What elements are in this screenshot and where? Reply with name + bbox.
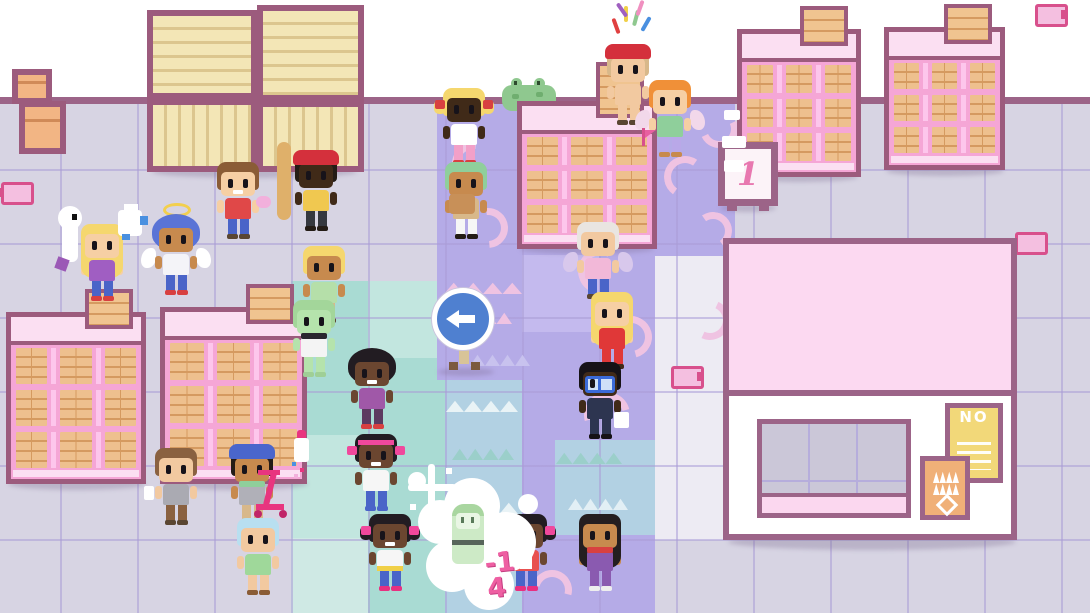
eye — [243, 179, 248, 188]
leg — [618, 104, 627, 121]
character-headband-girl[interactable] — [350, 432, 402, 518]
leg — [166, 504, 175, 521]
torso — [599, 328, 625, 349]
ghost-eye — [461, 517, 464, 523]
torso — [163, 254, 189, 275]
confetti-bits — [292, 462, 308, 480]
ghost-face — [456, 513, 480, 529]
score-popup: -14 — [483, 548, 524, 601]
character-carrier-kid[interactable] — [440, 160, 492, 246]
wing-icon — [141, 248, 156, 268]
character-overalls-kid[interactable] — [212, 160, 264, 246]
jug-handle — [140, 216, 148, 225]
arm — [404, 552, 411, 565]
scooter-stem — [263, 473, 277, 506]
bow-icon — [361, 526, 371, 535]
game-scene: NO 1 — [0, 0, 1090, 613]
mouth — [367, 380, 377, 384]
arm — [612, 260, 619, 273]
eye — [605, 531, 610, 540]
torso — [225, 198, 251, 219]
held-item — [256, 196, 271, 208]
arm — [386, 390, 393, 403]
hat — [605, 44, 651, 59]
eye — [454, 105, 459, 114]
scooter-wheel — [279, 510, 287, 518]
leg — [178, 274, 187, 291]
torso — [359, 388, 385, 409]
torso — [615, 84, 641, 105]
wing-icon — [635, 110, 650, 130]
eye — [181, 465, 186, 474]
hat — [293, 150, 339, 165]
face — [299, 164, 333, 188]
eye — [92, 241, 97, 250]
held-item — [377, 566, 403, 571]
leg — [374, 408, 383, 425]
bow-icon — [347, 446, 357, 455]
eye — [166, 465, 171, 474]
eye — [618, 65, 623, 74]
held-item — [144, 486, 154, 500]
leg — [304, 356, 313, 373]
face — [611, 58, 645, 82]
white-bird[interactable] — [52, 206, 88, 272]
leg — [166, 274, 175, 291]
face — [595, 302, 629, 326]
arm — [355, 472, 362, 485]
character-slingshot-kid[interactable] — [150, 446, 202, 532]
ghost-eye — [471, 517, 474, 523]
eye — [366, 451, 371, 460]
leg — [92, 280, 101, 297]
torso — [245, 554, 271, 575]
eye — [314, 263, 319, 272]
eye — [395, 531, 400, 540]
character-glasses-man[interactable] — [574, 360, 626, 446]
arm — [190, 256, 197, 269]
eye — [590, 379, 595, 388]
bow-icon — [483, 100, 493, 109]
torso — [89, 260, 115, 281]
eye — [248, 535, 253, 544]
eye — [456, 179, 461, 188]
leg — [466, 144, 475, 161]
sparkle-effect — [408, 464, 456, 512]
character-beret-baguette-kid[interactable] — [290, 152, 342, 238]
face — [159, 458, 193, 482]
arm — [155, 256, 162, 269]
eye — [633, 65, 638, 74]
bow-icon — [395, 446, 405, 455]
arm — [293, 338, 300, 351]
bird-tail — [54, 256, 69, 271]
arm — [330, 192, 337, 205]
torso — [363, 470, 389, 491]
eye — [306, 171, 311, 180]
scarf — [587, 547, 613, 553]
eye — [228, 179, 233, 188]
eye — [242, 465, 247, 474]
arm — [443, 126, 450, 139]
eye — [471, 179, 476, 188]
bow-icon — [545, 526, 555, 535]
leg — [318, 210, 327, 227]
character-orange-fairy[interactable] — [644, 78, 696, 164]
character-mint-kid[interactable] — [232, 516, 284, 602]
face — [583, 372, 617, 396]
eye — [181, 235, 186, 244]
eye — [590, 531, 595, 540]
eye — [617, 309, 622, 318]
eye — [675, 97, 680, 106]
arm — [369, 552, 376, 565]
arm — [480, 200, 487, 213]
face — [307, 256, 341, 280]
leg — [316, 356, 325, 373]
eye — [329, 263, 334, 272]
face — [583, 524, 617, 548]
arm — [478, 126, 485, 139]
eye — [380, 531, 385, 540]
ghost-body — [452, 504, 484, 564]
mini-magenta-flag — [642, 128, 658, 146]
arm — [351, 390, 358, 403]
jug-foot — [122, 234, 130, 240]
bow-icon — [435, 100, 445, 109]
scarf — [301, 333, 327, 339]
wing-icon — [690, 110, 705, 130]
leg — [672, 136, 681, 153]
eye — [166, 235, 171, 244]
arm — [231, 486, 238, 499]
ghost-belt — [452, 540, 484, 545]
face — [355, 362, 389, 386]
hat — [229, 444, 275, 459]
held-item — [449, 194, 475, 214]
arm — [540, 552, 547, 565]
character-scarf-girl[interactable] — [574, 512, 626, 598]
torso — [301, 336, 327, 357]
mouth — [385, 542, 395, 546]
leg — [660, 136, 669, 153]
arm — [217, 200, 224, 213]
wing-icon — [618, 252, 633, 272]
eye — [605, 379, 610, 388]
white-jug-item[interactable] — [118, 204, 150, 242]
wing-icon — [563, 252, 578, 272]
mouth — [371, 462, 381, 466]
torso — [587, 398, 613, 419]
eye — [381, 451, 386, 460]
arm — [295, 192, 302, 205]
arm — [190, 486, 197, 499]
scooter-deck — [256, 504, 284, 510]
bird-eye — [72, 214, 77, 220]
pink-scooter[interactable] — [248, 470, 294, 520]
leg — [248, 574, 257, 591]
leg — [260, 574, 269, 591]
eye — [362, 369, 367, 378]
arm — [577, 260, 584, 273]
arm — [684, 118, 691, 131]
arm — [338, 284, 345, 297]
arm — [390, 472, 397, 485]
popsicle-item[interactable] — [294, 430, 312, 464]
leg — [392, 570, 401, 587]
eye — [603, 239, 608, 248]
face — [159, 228, 193, 252]
eye — [660, 97, 665, 106]
face — [241, 528, 275, 552]
leg — [240, 218, 249, 235]
cloud-puff — [518, 494, 538, 514]
arm — [328, 338, 335, 351]
arm — [607, 86, 614, 99]
character-zombie-kid[interactable] — [288, 298, 340, 384]
face — [449, 172, 483, 196]
torso — [585, 258, 611, 279]
held-item — [277, 142, 291, 220]
character-pigtails-girl[interactable] — [364, 512, 416, 598]
eye — [321, 171, 326, 180]
eye — [263, 535, 268, 544]
leg — [456, 218, 465, 235]
leg — [602, 570, 611, 587]
face — [653, 90, 687, 114]
jug-top — [124, 204, 138, 214]
leg — [380, 570, 389, 587]
held-item — [614, 412, 629, 428]
wing-icon — [196, 248, 211, 268]
arm — [155, 486, 162, 499]
eye — [377, 369, 382, 378]
leg — [590, 570, 599, 587]
bird-body — [62, 222, 78, 262]
character-afro-girl[interactable] — [346, 350, 398, 436]
headband — [358, 440, 394, 445]
torso — [657, 116, 683, 137]
arm — [272, 556, 279, 569]
leg — [602, 418, 611, 435]
mouth — [233, 190, 243, 194]
leg — [306, 210, 315, 227]
leg — [454, 144, 463, 161]
torso — [163, 484, 189, 505]
leg — [362, 408, 371, 425]
face — [447, 98, 481, 122]
leg — [178, 504, 187, 521]
leg — [378, 490, 387, 507]
eye — [107, 241, 112, 250]
leg — [366, 490, 375, 507]
eye — [304, 317, 309, 326]
torso — [451, 124, 477, 145]
popsicle-wrapper — [294, 438, 309, 462]
eye — [469, 105, 474, 114]
eye — [602, 309, 607, 318]
arm — [579, 400, 586, 413]
face — [297, 310, 331, 334]
leg — [590, 418, 599, 435]
torso — [587, 550, 613, 571]
party-confetti — [604, 0, 664, 44]
character-layer — [0, 0, 1090, 613]
face — [373, 524, 407, 548]
torso — [303, 190, 329, 211]
face — [359, 444, 393, 468]
leg — [228, 218, 237, 235]
leg — [468, 218, 477, 235]
scooter-wheel — [254, 510, 262, 518]
face — [221, 172, 255, 196]
character-blue-angel[interactable] — [150, 216, 202, 302]
eye — [588, 239, 593, 248]
arm — [237, 556, 244, 569]
face — [581, 232, 615, 256]
face — [85, 234, 119, 258]
leg — [104, 280, 113, 297]
eye — [319, 317, 324, 326]
arm — [303, 284, 310, 297]
